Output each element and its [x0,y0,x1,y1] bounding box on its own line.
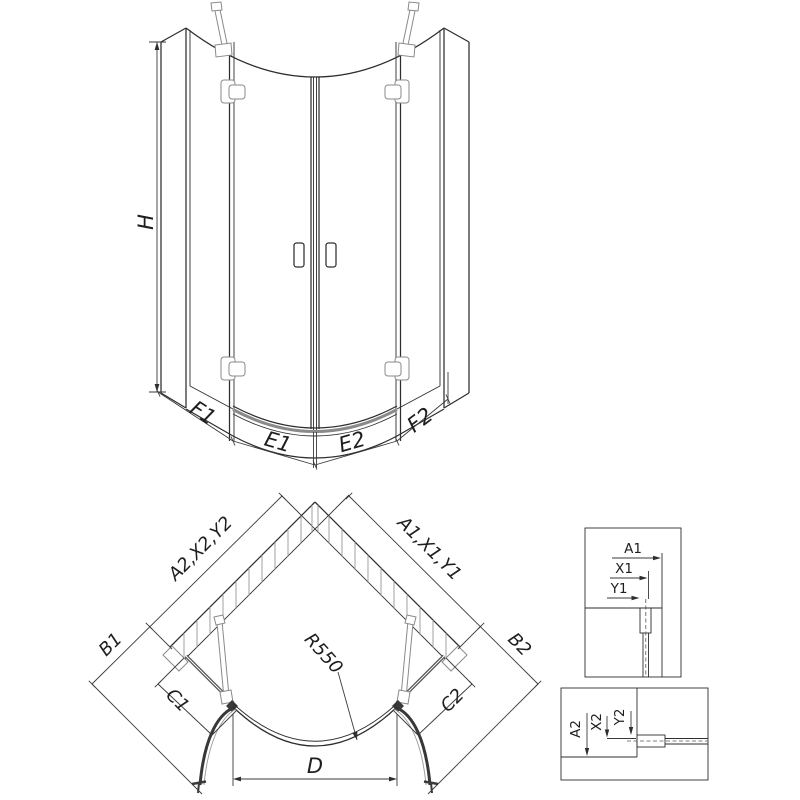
hinge-top-right [385,80,409,103]
dim-label-a1x1y1: A1,X1,Y1 [392,512,465,585]
front-elevation-view: H [134,2,469,470]
hinge-top-left [221,80,245,103]
detail-label-a1: A1 [624,541,642,557]
detail-label-y1: Y1 [610,581,628,597]
right-door-handle [326,243,336,267]
tray-rim [186,406,444,458]
right-wall-outer [315,502,460,647]
panel-dimensions: C1 C2 [155,658,475,738]
right-support-bar [398,2,419,57]
dim-label-h: H [134,214,158,230]
dim-label-f1: F1 [186,396,220,430]
dim-label-r550: R550 [300,629,347,678]
technical-drawing-page: H [0,0,800,800]
right-wall-dimensions: A1,X1,Y1 B2 [346,493,541,794]
detail-label-x1: X1 [615,561,633,577]
dim-label-e1: E1 [262,427,294,457]
left-support-bar [211,2,232,57]
detail-label-a2: A2 [568,720,584,738]
dim-label-b1: B1 [95,629,127,661]
left-wall-dimensions: A2,X2,Y2 B1 [89,493,285,794]
right-plan-support-bar [397,615,416,704]
dim-label-a2x2y2: A2,X2,Y2 [164,512,237,585]
left-plan-support-bar [214,615,233,704]
quadrant-arc-inner [233,704,397,742]
hinge-bottom-left [221,357,245,380]
bottom-dimension-chain: F1 E1 E2 F2 [156,372,450,470]
opening-dimension: D [233,714,397,786]
radius-dimension: R550 [300,629,358,740]
dim-label-b2: B2 [504,629,536,661]
dim-label-c1: C1 [161,685,193,717]
detail-label-y2: Y2 [612,709,628,727]
detail-view-top: A1 X1 Y1 [585,528,681,677]
detail-label-x2: X2 [589,713,605,731]
detail-view-bottom: A2 X2 Y2 [561,688,708,780]
dim-label-c2: C2 [437,685,469,717]
left-door-handle [294,243,304,267]
shower-enclosure-drawing: H [0,0,800,800]
left-wall-outer [170,502,315,647]
quadrant-arc-outer [233,707,397,746]
dim-label-d: D [307,754,323,778]
plan-view: A2,X2,Y2 B1 A1,X1,Y1 B2 C1 [89,493,541,794]
hinge-bottom-right [385,357,409,380]
dim-label-e2: E2 [336,427,368,457]
